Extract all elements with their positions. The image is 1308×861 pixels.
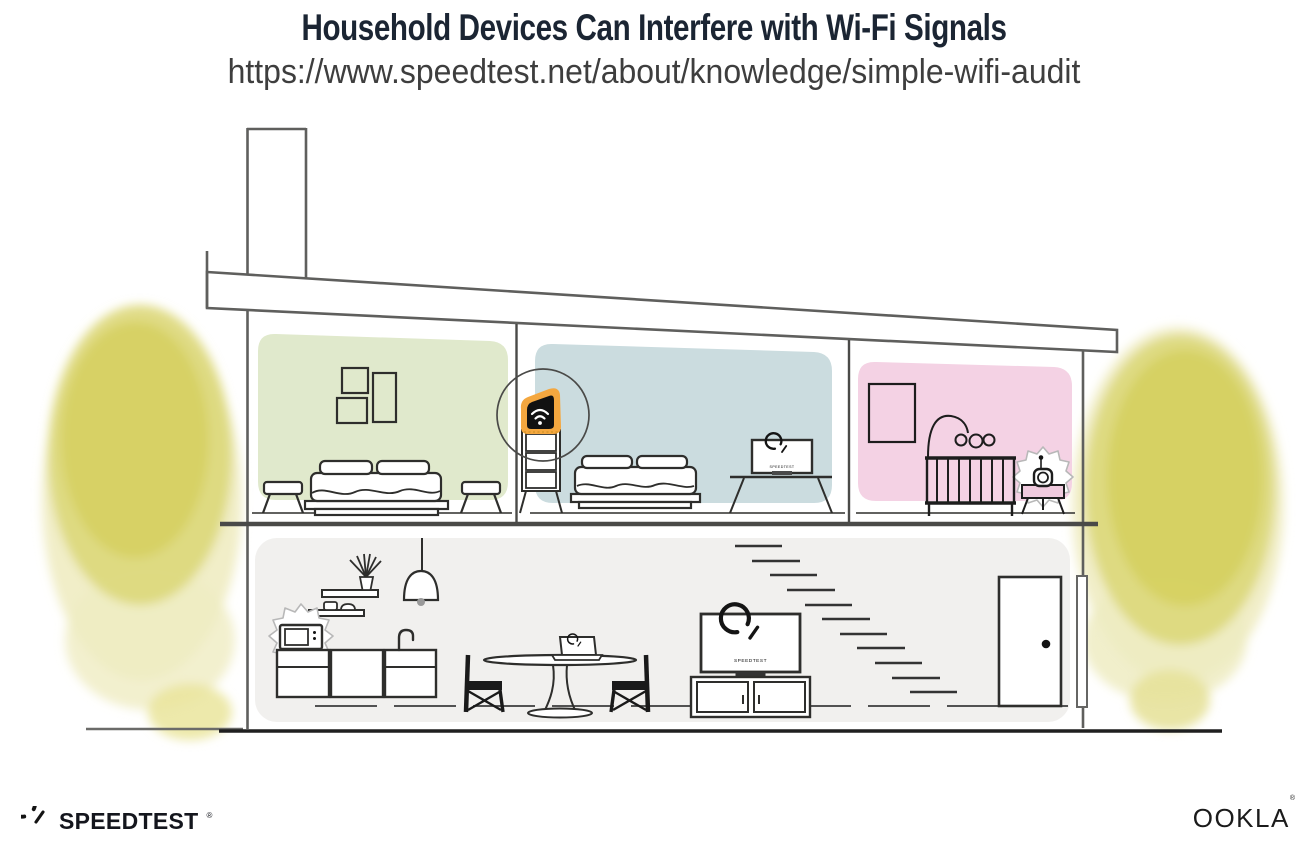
pillow xyxy=(377,461,429,474)
ookla-logo-text: OOKLA xyxy=(1193,803,1290,833)
tv-downstairs: SPEEDTEST xyxy=(701,604,800,676)
chimney xyxy=(247,128,306,280)
watercolor-blob xyxy=(1107,350,1263,606)
microwave xyxy=(280,625,322,649)
ookla-logo: OOKLA® xyxy=(1193,803,1295,834)
tv-upstairs: SPEEDTEST xyxy=(752,433,812,475)
mattress xyxy=(311,473,441,501)
watercolor-tree-right xyxy=(1072,327,1284,730)
monitor-antenna-tip xyxy=(1039,455,1044,460)
bed xyxy=(305,461,448,515)
bed-platform xyxy=(571,494,700,502)
speedtest-logo: SPEEDTEST® xyxy=(21,806,212,836)
registered-mark: ® xyxy=(206,811,212,820)
room-bedroom-green xyxy=(252,334,512,515)
bed-platform xyxy=(305,501,448,509)
watercolor-tree-left xyxy=(42,305,242,740)
pillow xyxy=(637,456,687,468)
tv-screen-label: SPEEDTEST xyxy=(770,465,795,469)
room-bedroom-blue: SPEEDTEST xyxy=(497,344,845,513)
shelf xyxy=(322,590,378,597)
lamp-bulb xyxy=(417,598,425,606)
pillow xyxy=(320,461,372,474)
bowl xyxy=(341,604,355,610)
pillow xyxy=(582,456,632,468)
watercolor-blob xyxy=(61,322,209,558)
infographic-page: Household Devices Can Interfere with Wi-… xyxy=(0,0,1308,861)
tv-screen-label: SPEEDTEST xyxy=(734,658,767,664)
speedtest-logo-text: SPEEDTEST xyxy=(59,808,198,835)
wifi-router xyxy=(521,388,561,434)
cup xyxy=(324,602,337,610)
media-console xyxy=(691,677,810,717)
bed-plinth xyxy=(315,509,438,515)
mattress xyxy=(575,467,696,494)
watercolor-blob xyxy=(1130,670,1210,730)
bed-plinth xyxy=(579,502,691,508)
door xyxy=(999,577,1061,706)
speedtest-gauge-icon xyxy=(21,806,51,836)
registered-mark: ® xyxy=(1290,795,1295,802)
table-base xyxy=(528,709,592,718)
door-knob xyxy=(1042,640,1051,649)
side-table xyxy=(1022,485,1064,514)
downspout xyxy=(1077,576,1087,707)
house-illustration: SPEEDTEST xyxy=(0,0,1308,861)
room-downstairs: SPEEDTEST xyxy=(255,538,1087,722)
room-nursery-pink xyxy=(856,362,1075,516)
